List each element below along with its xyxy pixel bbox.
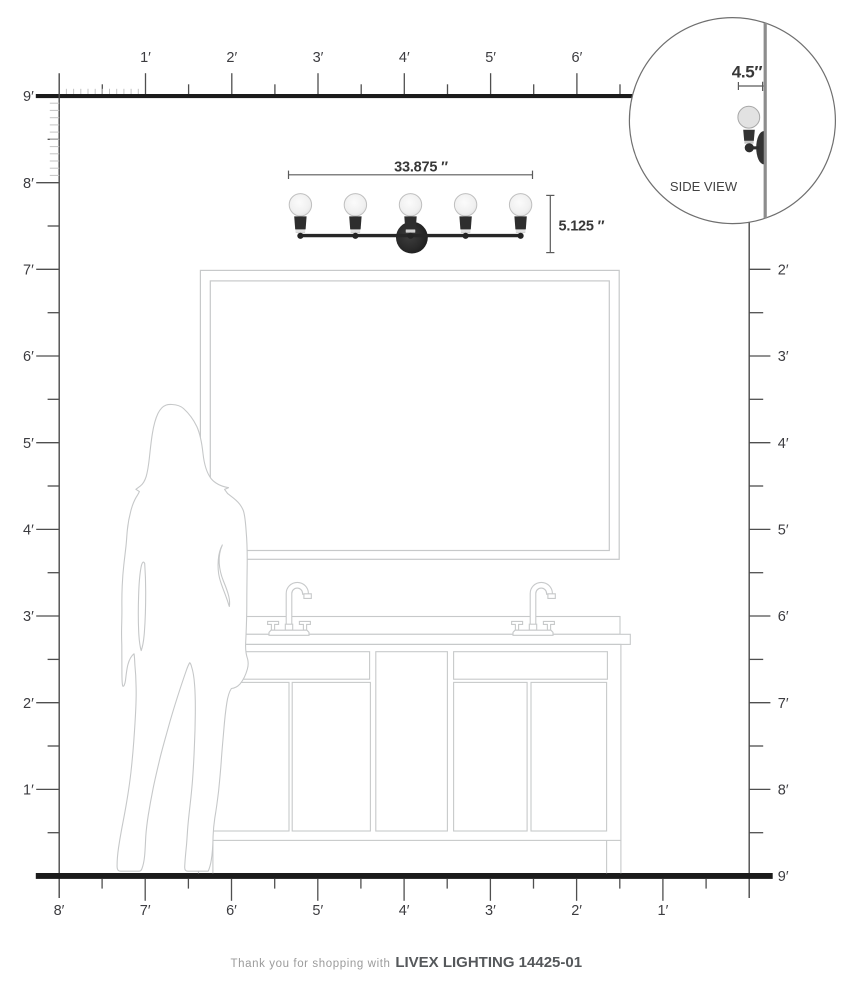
svg-text:5′: 5′ xyxy=(778,523,789,539)
svg-text:SIDE VIEW: SIDE VIEW xyxy=(670,179,738,194)
svg-text:6′: 6′ xyxy=(572,50,583,66)
svg-text:5′: 5′ xyxy=(485,50,496,66)
svg-text:3′: 3′ xyxy=(313,50,324,66)
svg-text:4′: 4′ xyxy=(399,903,410,919)
svg-text:5′: 5′ xyxy=(23,436,34,452)
svg-text:4.5″: 4.5″ xyxy=(732,63,763,82)
svg-text:8′: 8′ xyxy=(778,783,789,799)
svg-text:3′: 3′ xyxy=(485,903,496,919)
svg-text:5′: 5′ xyxy=(312,903,323,919)
svg-text:3′: 3′ xyxy=(23,609,34,625)
svg-text:6′: 6′ xyxy=(778,609,789,625)
svg-text:5.125 ″: 5.125 ″ xyxy=(559,219,605,235)
svg-text:6′: 6′ xyxy=(23,349,34,365)
svg-text:9′: 9′ xyxy=(23,89,34,105)
svg-text:1′: 1′ xyxy=(658,903,669,919)
svg-text:3′: 3′ xyxy=(778,349,789,365)
svg-text:2′: 2′ xyxy=(778,263,789,279)
svg-text:8′: 8′ xyxy=(54,903,65,919)
svg-text:2′: 2′ xyxy=(226,50,237,66)
svg-text:1′: 1′ xyxy=(23,783,34,799)
svg-text:Thank you for shopping with LI: Thank you for shopping with LIVEX LIGHTI… xyxy=(231,954,583,971)
svg-text:7′: 7′ xyxy=(23,263,34,279)
svg-text:6′: 6′ xyxy=(226,903,237,919)
svg-text:7′: 7′ xyxy=(778,696,789,712)
svg-text:7′: 7′ xyxy=(140,903,151,919)
svg-text:9′: 9′ xyxy=(778,869,789,885)
svg-text:4′: 4′ xyxy=(399,50,410,66)
svg-text:2′: 2′ xyxy=(23,696,34,712)
svg-text:33.875 ″: 33.875 ″ xyxy=(394,160,448,176)
svg-text:4′: 4′ xyxy=(23,523,34,539)
svg-text:8′: 8′ xyxy=(23,176,34,192)
svg-text:1′: 1′ xyxy=(140,50,151,66)
svg-text:4′: 4′ xyxy=(778,436,789,452)
svg-text:2′: 2′ xyxy=(571,903,582,919)
